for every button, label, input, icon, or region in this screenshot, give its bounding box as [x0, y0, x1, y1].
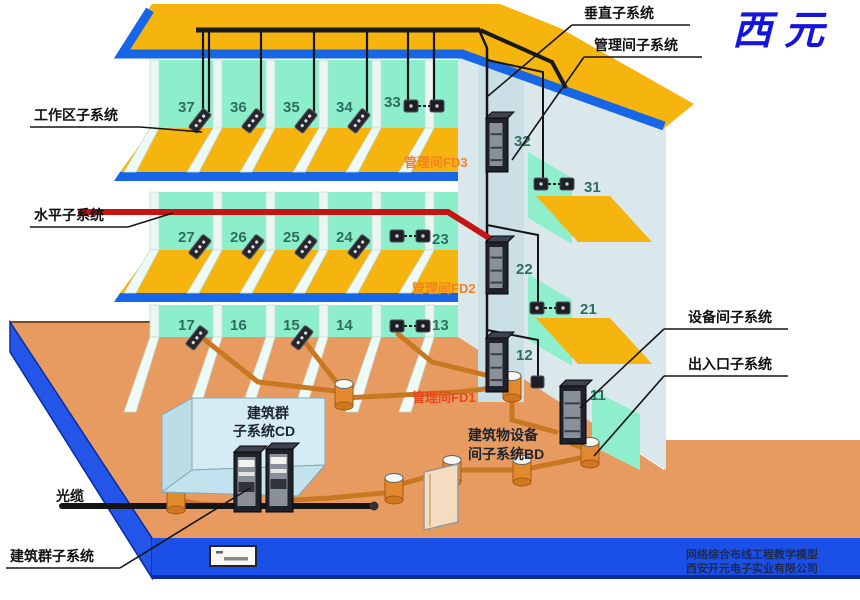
horizontal-label: 水平子系统 [34, 207, 104, 223]
room-16: 16 [230, 317, 247, 334]
room-27: 27 [178, 229, 195, 246]
partition-wall [150, 192, 159, 250]
partition-wall [319, 192, 328, 250]
mgmt-room-label: 管理间子系统 [594, 37, 678, 53]
campus-label: 建筑群子系统 [10, 548, 94, 564]
room-13: 13 [432, 317, 449, 334]
room-31: 31 [584, 179, 601, 196]
partition-wall [150, 305, 159, 337]
partition-wall [372, 305, 381, 337]
room-22: 22 [516, 261, 533, 278]
vertical-label: 垂直子系统 [584, 5, 654, 21]
room-12: 12 [516, 347, 533, 364]
partition-wall [266, 192, 275, 250]
room-25: 25 [283, 229, 300, 246]
base-plaque [210, 546, 256, 566]
fd3-label: 管理间FD3 [404, 155, 468, 170]
room-17: 17 [178, 317, 195, 334]
optical-cable-label: 光缆 [55, 488, 84, 504]
fd1-label: 管理间FD1 [412, 390, 476, 405]
room-24: 24 [336, 229, 353, 246]
bd-label-1: 建筑物设备 [468, 427, 539, 443]
footer-line-1: 网络综合布线工程教学模型 [686, 547, 818, 561]
brand-logo: 西元 [732, 9, 836, 53]
room-15: 15 [283, 317, 300, 334]
partition-wall [372, 192, 381, 250]
partition-wall [213, 192, 222, 250]
outlet-box-single [531, 376, 544, 388]
manhole-cylinder [335, 380, 353, 411]
work-area-label: 工作区子系统 [34, 107, 118, 123]
fd2-label: 管理间FD2 [412, 281, 476, 296]
room-23: 23 [432, 231, 449, 248]
partition-wall [425, 60, 434, 128]
cabling-system-diagram: 建筑群 子系统CD 37 36 35 34 33 32 31 27 26 25 … [0, 0, 860, 600]
room-26: 26 [230, 229, 247, 246]
partition-wall [372, 60, 381, 128]
entrance-door [424, 464, 458, 530]
room-34: 34 [336, 99, 353, 116]
diagram-canvas: 建筑群 子系统CD 37 36 35 34 33 32 31 27 26 25 … [0, 0, 860, 600]
partition-wall [213, 305, 222, 337]
partition-wall [319, 305, 328, 337]
partition-wall [150, 60, 159, 128]
cd-box-label-2: 子系统CD [233, 423, 295, 439]
room-14: 14 [336, 317, 353, 334]
partition-wall [213, 60, 222, 128]
entrance-label: 出入口子系统 [688, 356, 772, 372]
footer-line-2: 西安开元电子实业有限公司 [686, 561, 818, 575]
room-36: 36 [230, 99, 247, 116]
room-33: 33 [384, 94, 401, 111]
base-bottom-edge [152, 575, 860, 579]
bd-label-2: 间子系统BD [468, 446, 544, 462]
partition-wall [319, 60, 328, 128]
room-21: 21 [580, 301, 597, 318]
room-37: 37 [178, 99, 195, 116]
room-35: 35 [283, 99, 300, 116]
floor3-slab-edge [114, 172, 458, 181]
partition-wall [266, 305, 275, 337]
optical-cable-connector [370, 502, 379, 511]
cd-box-label-1: 建筑群 [247, 405, 289, 421]
equipment-room-label: 设备间子系统 [688, 309, 772, 325]
partition-wall [266, 60, 275, 128]
manhole-cylinder [385, 474, 403, 505]
floor2-slab-edge [114, 293, 458, 302]
